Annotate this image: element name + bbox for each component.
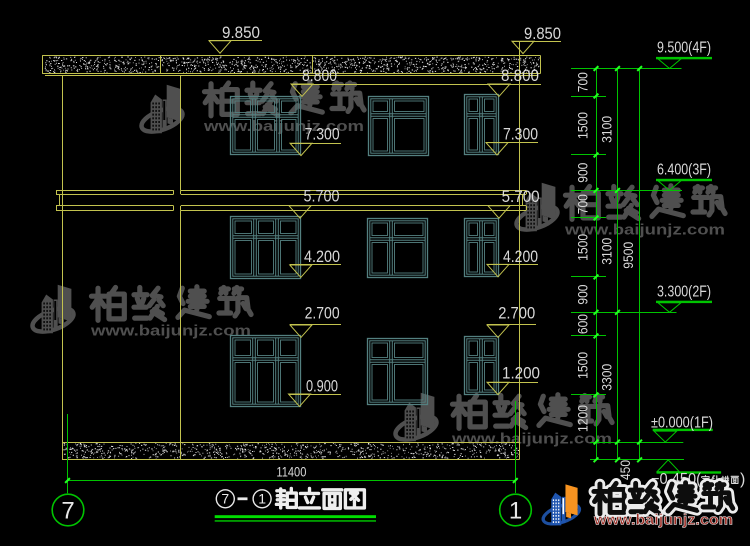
- svg-text:450: 450: [618, 460, 633, 480]
- svg-text:7: 7: [221, 491, 229, 507]
- svg-text:1: 1: [509, 498, 522, 525]
- svg-text:0.900: 0.900: [306, 377, 338, 396]
- svg-text:±0.000(1F): ±0.000(1F): [651, 415, 713, 432]
- svg-text:3100: 3100: [600, 238, 615, 265]
- svg-text:4.200: 4.200: [503, 247, 538, 266]
- svg-text:600: 600: [576, 314, 591, 334]
- svg-text:1200: 1200: [576, 405, 591, 432]
- svg-text:7.300: 7.300: [503, 125, 538, 144]
- svg-text:7: 7: [61, 498, 74, 525]
- svg-text:5.700: 5.700: [304, 187, 340, 206]
- svg-text:900: 900: [576, 285, 591, 305]
- svg-text:6.400(3F): 6.400(3F): [657, 162, 711, 179]
- svg-text:www.baijunjz.com: www.baijunjz.com: [90, 324, 251, 340]
- svg-text:7.300: 7.300: [305, 125, 340, 144]
- svg-text:8.800: 8.800: [501, 66, 539, 85]
- svg-text:9500: 9500: [621, 242, 636, 269]
- svg-text:www.baijunjz.com: www.baijunjz.com: [203, 119, 364, 135]
- svg-text:5.700: 5.700: [502, 187, 540, 206]
- svg-text:3.300(2F): 3.300(2F): [657, 284, 711, 301]
- svg-text:2.700: 2.700: [305, 304, 340, 323]
- svg-text:1500: 1500: [576, 234, 591, 261]
- svg-text:www.baijunjz.com: www.baijunjz.com: [593, 513, 733, 529]
- svg-text:11400: 11400: [276, 464, 306, 480]
- svg-text:3100: 3100: [600, 116, 615, 143]
- svg-text:1500: 1500: [576, 352, 591, 379]
- svg-text:1500: 1500: [576, 112, 591, 139]
- svg-text:700: 700: [576, 194, 591, 214]
- svg-text:900: 900: [576, 163, 591, 183]
- svg-text:3300: 3300: [600, 364, 615, 391]
- svg-text:9.500(4F): 9.500(4F): [657, 40, 711, 57]
- svg-text:1.200: 1.200: [502, 364, 540, 383]
- svg-text:9.850: 9.850: [524, 24, 561, 43]
- svg-text:2.700: 2.700: [498, 304, 535, 323]
- svg-text:4.200: 4.200: [304, 247, 340, 266]
- svg-text:8.800: 8.800: [302, 66, 337, 85]
- svg-text:700: 700: [576, 72, 591, 92]
- svg-text:9.850: 9.850: [222, 23, 260, 42]
- svg-text:www.baijunjz.com: www.baijunjz.com: [451, 432, 612, 448]
- svg-text:): ): [740, 471, 745, 488]
- svg-text:1: 1: [258, 491, 266, 507]
